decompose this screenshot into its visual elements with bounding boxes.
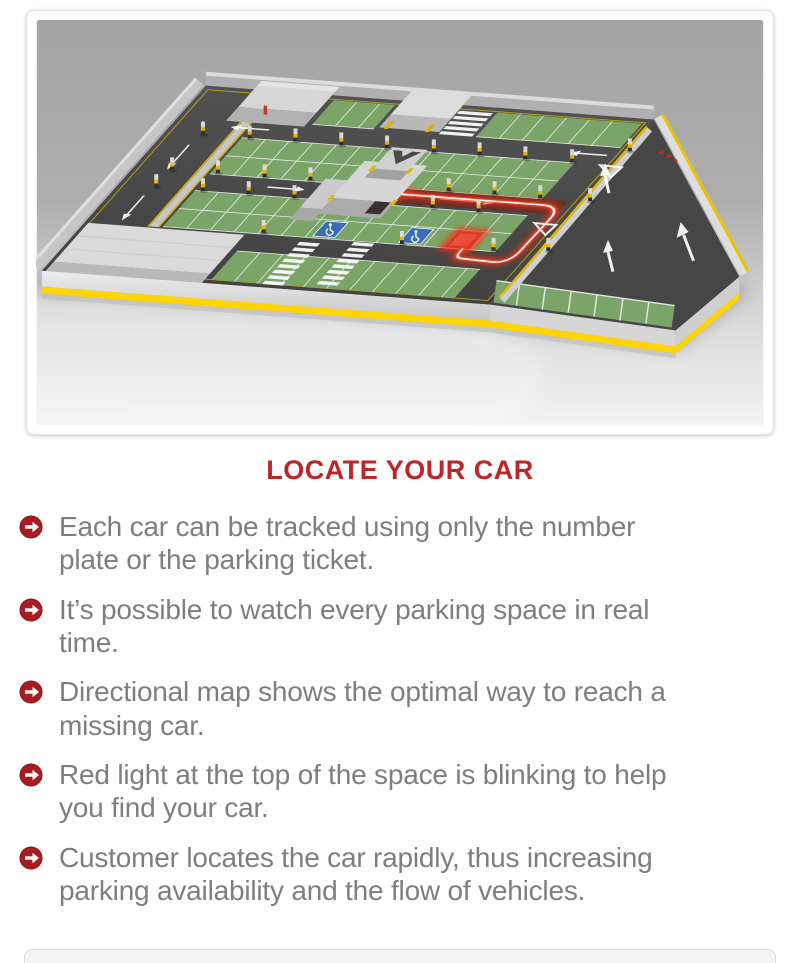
feature-text: Customer locates the car rapidly, thus i… — [59, 841, 699, 908]
arrow-right-circle-icon — [19, 846, 43, 870]
arrow-right-circle-icon — [19, 680, 43, 704]
feature-text: Red light at the top of the space is bli… — [59, 758, 699, 825]
list-item: Customer locates the car rapidly, thus i… — [19, 841, 781, 908]
arrow-right-circle-icon — [19, 515, 43, 539]
arrow-right-circle-icon — [19, 763, 43, 787]
feature-text: Directional map shows the optimal way to… — [59, 675, 699, 742]
arrow-right-circle-icon — [19, 598, 43, 622]
list-item: Each car can be tracked using only the n… — [19, 510, 781, 577]
list-item: Directional map shows the optimal way to… — [19, 675, 781, 742]
next-card-divider — [24, 949, 776, 963]
photo-card — [26, 10, 774, 435]
parking-map-illustration — [36, 20, 764, 425]
feature-text: It’s possible to watch every parking spa… — [59, 593, 699, 660]
list-item: It’s possible to watch every parking spa… — [19, 593, 781, 660]
feature-text: Each car can be tracked using only the n… — [59, 510, 699, 577]
feature-list: Each car can be tracked using only the n… — [19, 510, 781, 907]
page-title: LOCATE YOUR CAR — [0, 455, 800, 486]
list-item: Red light at the top of the space is bli… — [19, 758, 781, 825]
